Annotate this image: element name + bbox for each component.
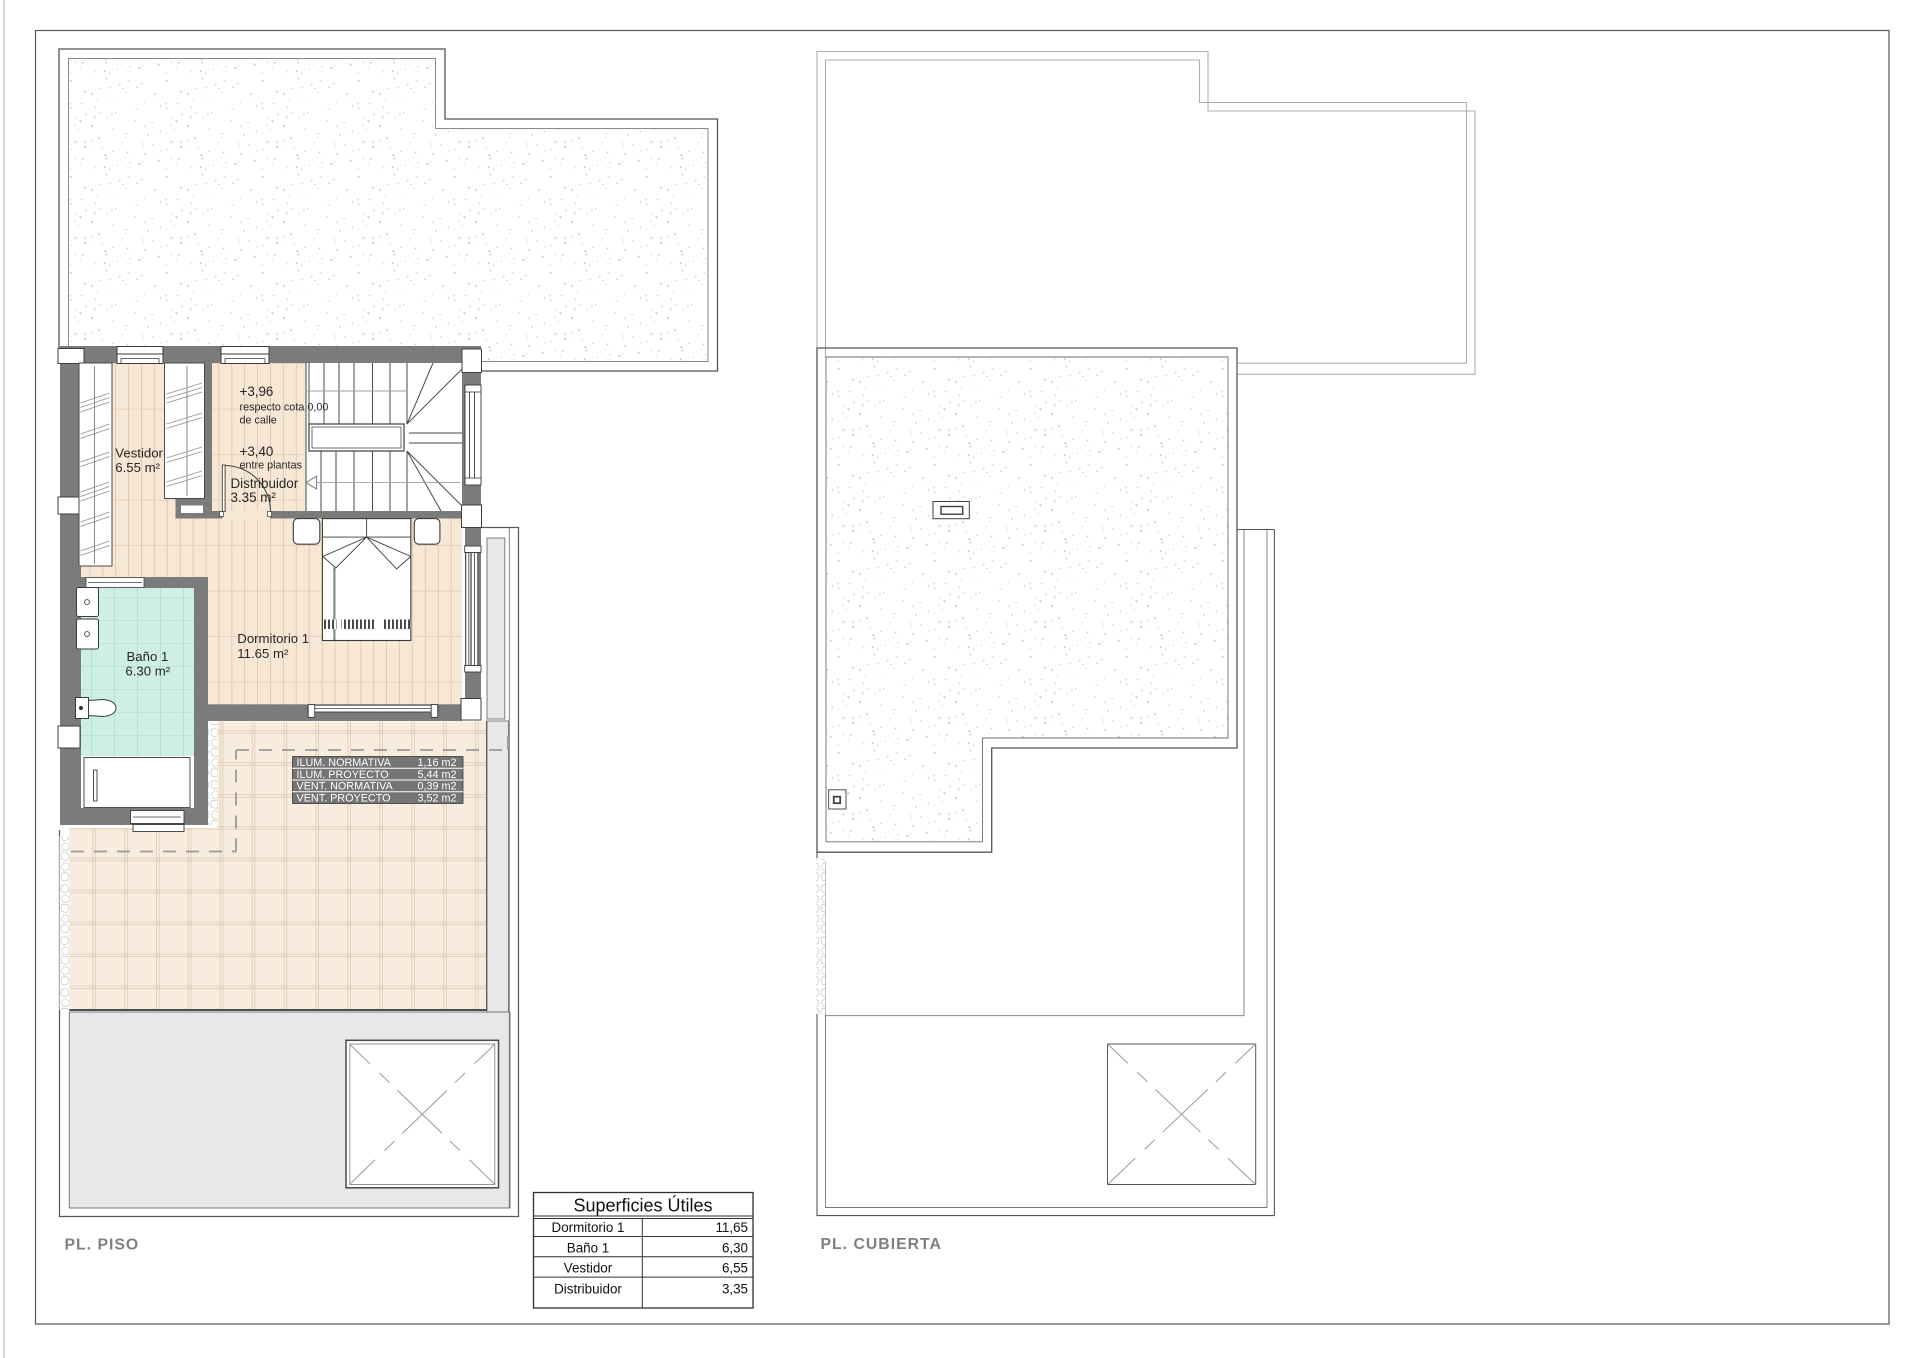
svg-text:1,16 m2: 1,16 m2: [417, 757, 456, 769]
svg-text:3.35 m²: 3.35 m²: [231, 490, 277, 505]
svg-text:Vestidor: Vestidor: [115, 446, 163, 461]
svg-text:VENT. PROYECTO: VENT. PROYECTO: [297, 792, 391, 804]
svg-text:Vestidor: Vestidor: [564, 1261, 613, 1276]
svg-text:6.30 m²: 6.30 m²: [125, 664, 170, 679]
svg-text:Distribuidor: Distribuidor: [554, 1282, 622, 1297]
svg-text:ILUM. PROYECTO: ILUM. PROYECTO: [297, 769, 389, 781]
svg-text:Dormitorio 1: Dormitorio 1: [237, 631, 309, 646]
svg-text:11,65: 11,65: [715, 1220, 748, 1235]
svg-text:3,52 m2: 3,52 m2: [417, 792, 456, 804]
svg-text:11.65 m²: 11.65 m²: [237, 646, 289, 661]
svg-text:de calle: de calle: [240, 415, 277, 427]
svg-text:6,55: 6,55: [722, 1261, 748, 1276]
svg-text:ILUM. NORMATIVA: ILUM. NORMATIVA: [297, 757, 392, 769]
svg-text:PL. PISO: PL. PISO: [65, 1237, 140, 1254]
svg-text:+3,96: +3,96: [240, 384, 274, 399]
svg-text:Baño 1: Baño 1: [567, 1240, 609, 1255]
svg-text:respecto cota 0,00: respecto cota 0,00: [240, 402, 329, 414]
svg-text:PL. CUBIERTA: PL. CUBIERTA: [821, 1236, 942, 1253]
svg-text:Dormitorio 1: Dormitorio 1: [552, 1220, 625, 1235]
svg-text:3,35: 3,35: [722, 1282, 748, 1297]
svg-text:6,30: 6,30: [722, 1240, 748, 1255]
svg-text:6.55 m²: 6.55 m²: [115, 460, 160, 475]
svg-text:5,44 m2: 5,44 m2: [417, 769, 456, 781]
svg-text:+3,40: +3,40: [240, 444, 274, 459]
svg-text:entre plantas: entre plantas: [240, 460, 303, 472]
svg-text:Baño 1: Baño 1: [127, 649, 169, 664]
svg-text:Superficies Útiles: Superficies Útiles: [573, 1195, 712, 1216]
svg-text:VENT. NORMATIVA: VENT. NORMATIVA: [297, 781, 394, 793]
svg-text:Distribuidor: Distribuidor: [231, 476, 299, 491]
svg-text:0,39 m2: 0,39 m2: [417, 781, 456, 793]
